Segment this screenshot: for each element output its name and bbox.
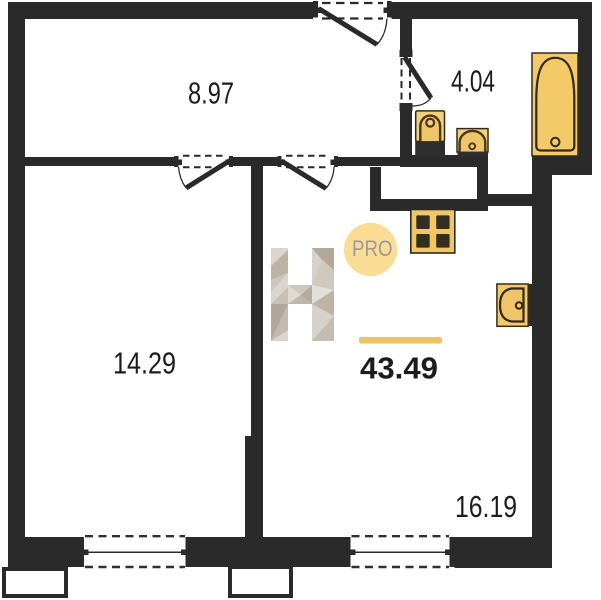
svg-text:8.97: 8.97 — [188, 76, 234, 111]
svg-text:4.04: 4.04 — [451, 64, 495, 99]
svg-text:16.19: 16.19 — [455, 489, 517, 524]
svg-text:PRO: PRO — [352, 236, 393, 261]
svg-text:43.49: 43.49 — [360, 351, 438, 386]
svg-text:14.29: 14.29 — [113, 346, 176, 381]
